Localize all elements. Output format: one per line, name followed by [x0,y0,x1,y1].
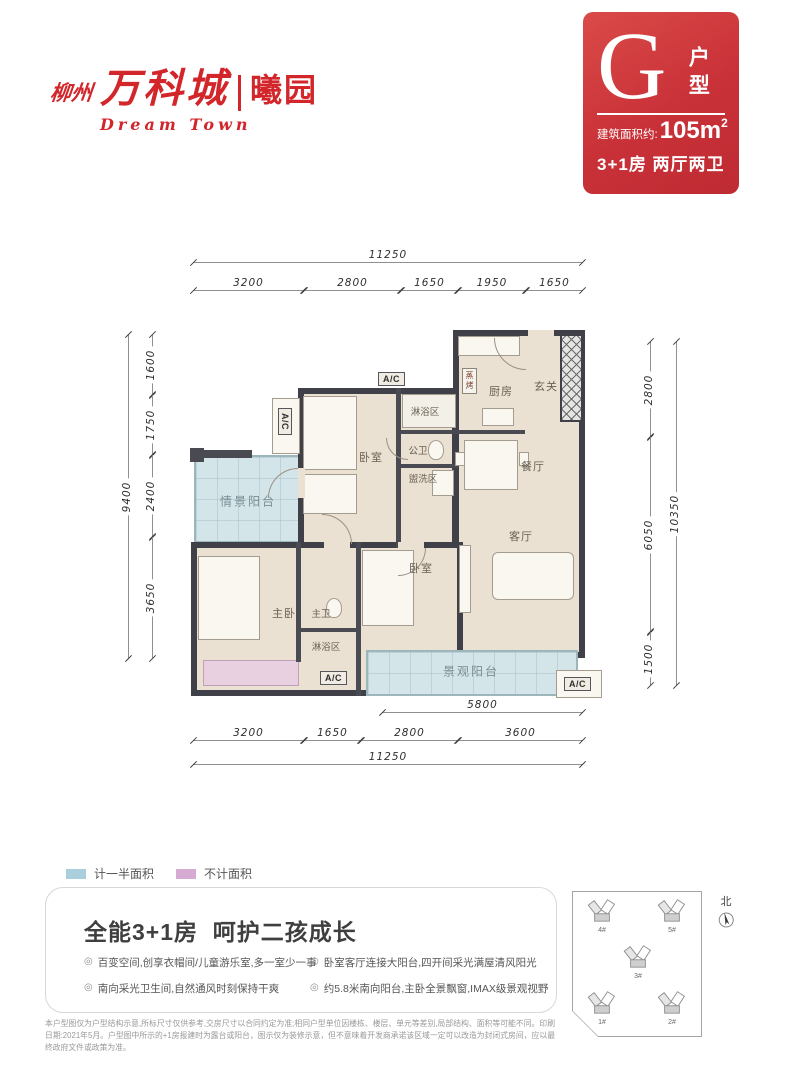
marketing-card: 全能3+1房 呵护二孩成长 ◎ 百变空间,创享衣帽间/儿童游乐室,多一室少一事 … [45,887,557,1013]
door-opening [528,330,554,337]
dim-left-seg: 3650 [152,537,153,658]
ac-unit: A/C [564,677,591,691]
building-marker: 3# [620,945,656,980]
dim-top-seg: 3200 [193,290,304,291]
building-label: 4# [584,927,620,934]
dining-chair [455,452,465,466]
selling-point: ◎ 南向采光卫生间,自然通风时刻保持干爽 [84,981,298,996]
unit-type-badge: G 户型 建筑面积约: 105m 2 3+1房 两厅两卫 [583,12,739,194]
scene-balcony-label: 情景阳台 [220,493,276,510]
dim-top-overall: 11250 [193,262,583,263]
ac-unit: A/C [320,671,347,685]
dim-right-seg: 1500 [650,632,651,685]
brand-logo: 柳州 万科城 曦园 Dream Town [50,56,318,134]
master-bedroom-label: 主卧 [272,605,296,621]
badge-area-line: 建筑面积约: 105m 2 [597,121,725,141]
selling-point: ◎ 卧室客厅连接大阳台,四开间采光满屋清风阳光 [310,955,548,970]
site-plan: 4# 5# 3# 1# 2# [572,891,702,1037]
view-balcony-label: 景观阳台 [443,663,499,680]
master-bath-label: 主卫 [311,606,330,620]
unit-letter: G [597,20,666,111]
building-label: 3# [620,973,656,980]
logo-city: 柳州 [48,77,94,114]
area-sup: 2 [721,116,728,130]
dining-table [464,440,518,490]
building-marker: 5# [654,899,690,934]
wash-area-label: 盥洗区 [409,471,438,485]
area-legend: 计一半面积 不计面积 [66,865,252,882]
door-opening [298,468,305,498]
wall [296,628,356,632]
building-marker: 2# [654,991,690,1026]
selling-point-text: 约5.8米南向阳台,主卧全景飘窗,IMAX级景观视野 [324,981,549,996]
legend-half-area: 计一半面积 [66,865,154,882]
disclaimer-text: 本户型图仅为户型结构示意,所标尺寸仅供参考,交房尺寸以合同约定为准;相同户型单位… [45,1018,555,1054]
dim-top-seg: 1650 [526,290,583,291]
kitchen-sink [482,408,514,426]
selling-point-text: 百变空间,创享衣帽间/儿童游乐室,多一室少一事 [98,955,317,970]
unit-type-label: 户型 [682,46,712,111]
sofa [492,552,574,600]
badge-spec: 3+1房 两厅两卫 [597,150,725,175]
wall [453,430,525,434]
kitchen-label: 厨房 [489,383,513,399]
wardrobe [303,474,357,514]
wall [396,388,401,548]
selling-point-text: 南向采光卫生间,自然通风时刻保持干爽 [98,981,279,996]
ac-unit: A/C [278,408,292,435]
bullet-icon: ◎ [84,981,93,994]
legend-pink-swatch [176,869,196,879]
area-prefix: 建筑面积约: [597,126,658,142]
building-marker: 1# [584,991,620,1026]
bedroom3-label: 卧室 [409,560,433,576]
shower-bottom-label: 淋浴区 [312,639,341,653]
logo-slogan: Dream Town [100,115,318,134]
bullet-icon: ◎ [310,955,319,968]
legend-no-area-label: 不计面积 [204,865,252,882]
dim-top-seg: 1950 [458,290,526,291]
steam-oven-tag: 蒸烤 [462,368,477,394]
building-label: 2# [654,1019,690,1026]
entry-label: 玄关 [534,378,558,394]
dim-left-seg: 1750 [152,395,153,455]
dim-top-seg: 2800 [304,290,401,291]
building-label: 5# [654,927,690,934]
building-icon [623,945,653,969]
structural-column [560,334,583,422]
tv-bench [459,545,471,613]
dim-left-seg: 1600 [152,335,153,395]
bed-master [198,556,260,640]
selling-point: ◎ 约5.8米南向阳台,主卧全景飘窗,IMAX级景观视野 [310,981,548,996]
dim-bottom-upper: 5800 [382,712,583,713]
selling-point: ◎ 百变空间,创享衣帽间/儿童游乐室,多一室少一事 [84,955,298,970]
north-indicator: 北 [714,893,738,932]
bedroom2-label: 卧室 [359,449,383,465]
dim-bottom-seg: 1650 [304,740,361,741]
building-marker: 4# [584,899,620,934]
dim-top-seg: 1650 [401,290,458,291]
building-icon [587,991,617,1015]
dining-label: 餐厅 [521,458,545,474]
compass-icon [715,907,737,931]
flyer-page: 柳州 万科城 曦园 Dream Town G 户型 建筑面积约: 105m 2 … [0,0,800,1077]
dim-bottom-seg: 2800 [361,740,458,741]
living-label: 客厅 [509,528,533,544]
dim-left-seg: 2400 [152,455,153,537]
building-icon [657,991,687,1015]
wall [356,542,361,696]
wall [190,448,204,462]
wall [396,464,458,468]
guest-bath-label: 公卫 [408,443,427,457]
ac-unit: A/C [378,372,405,386]
selling-points: ◎ 百变空间,创享衣帽间/儿童游乐室,多一室少一事 ◎ 卧室客厅连接大阳台,四开… [84,955,548,996]
legend-half-area-label: 计一半面积 [94,865,154,882]
bullet-icon: ◎ [310,981,319,994]
dim-right-overall: 10350 [676,342,677,685]
building-icon [657,899,687,923]
shower-top-label: 淋浴区 [411,404,440,418]
dim-right-seg: 6050 [650,437,651,632]
bullet-icon: ◎ [84,955,93,968]
dim-bottom-seg: 3600 [458,740,583,741]
area-value: 105m [660,121,721,141]
logo-name: 万科城 [100,56,229,114]
building-label: 1# [584,1019,620,1026]
wall [396,430,458,434]
marketing-title: 全能3+1房 呵护二孩成长 [84,913,357,947]
dim-bottom-seg: 3200 [193,740,304,741]
dim-left-overall: 9400 [128,335,129,658]
dim-bottom-overall: 11250 [193,764,583,765]
north-label: 北 [721,896,732,908]
building-icon [587,899,617,923]
legend-no-area: 不计面积 [176,865,252,882]
toilet [428,440,444,460]
legend-blue-swatch [66,869,86,879]
bay-window [203,660,299,686]
logo-subname: 曦园 [250,65,318,114]
dim-right-seg: 2800 [650,342,651,437]
selling-point-text: 卧室客厅连接大阳台,四开间采光满屋清风阳光 [324,955,537,970]
logo-divider [238,75,241,111]
wall [296,542,301,662]
bed-second [303,396,357,470]
